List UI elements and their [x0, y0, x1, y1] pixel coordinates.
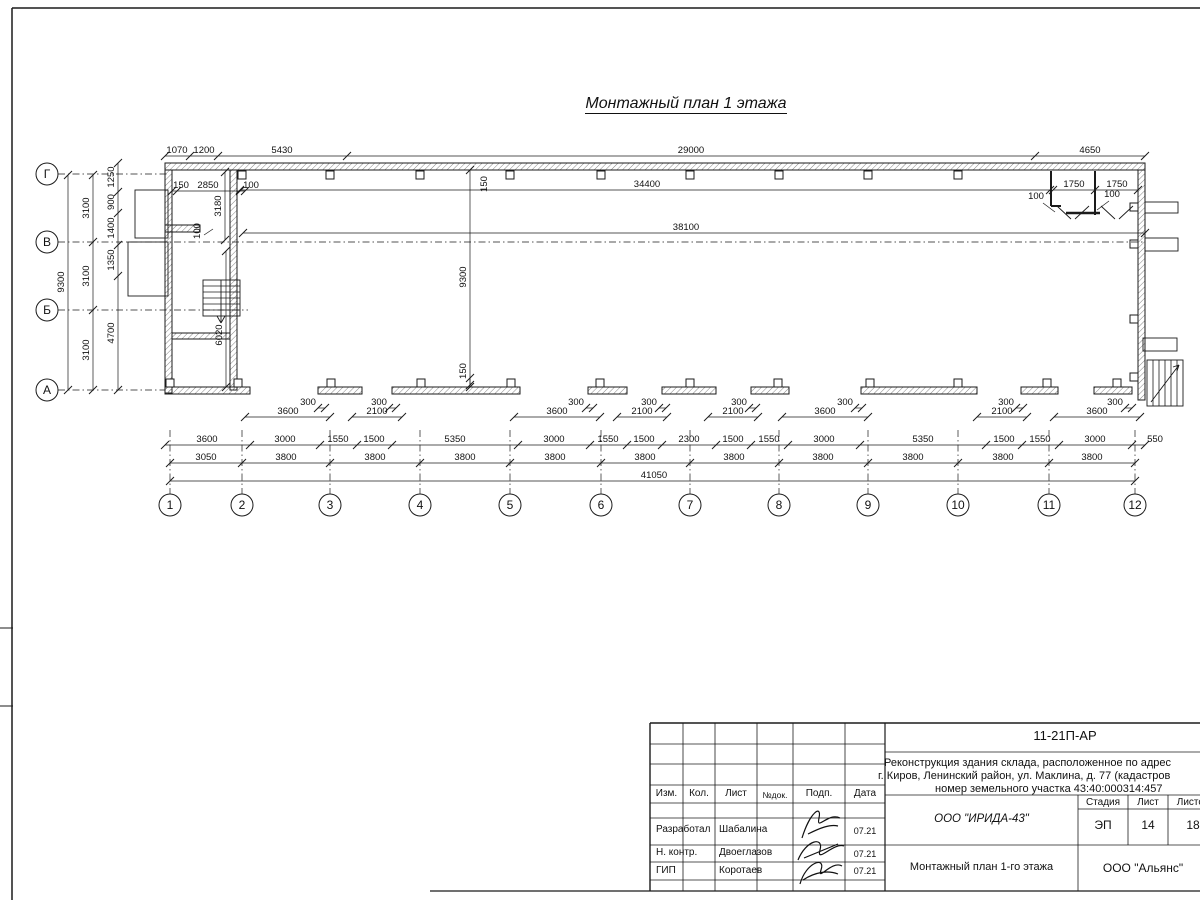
dim-label: 1750	[1063, 179, 1084, 190]
wall	[662, 387, 716, 394]
dimensions-layer: 1070120054302900046501502850100175017503…	[56, 145, 1163, 485]
wall	[392, 387, 520, 394]
wall	[165, 387, 250, 394]
project-description-line3: номер земельного участка 43:40:000314:45…	[935, 783, 1163, 795]
dim-label: 3600	[196, 434, 217, 445]
dim-label: 3100	[81, 339, 92, 360]
header-izm: Изм.	[650, 788, 683, 799]
axis-label: 10	[951, 498, 965, 512]
column-marker	[507, 379, 515, 387]
column-marker	[686, 379, 694, 387]
dim-label: 3800	[902, 452, 923, 463]
column-marker	[238, 171, 246, 179]
dim-label: 3800	[544, 452, 565, 463]
listov-value: 18	[1168, 818, 1200, 832]
structure-outline	[1145, 202, 1178, 213]
axis-label: 7	[687, 498, 694, 512]
dim-label: 29000	[678, 145, 704, 156]
column-marker	[506, 171, 514, 179]
dim-label: 34400	[634, 179, 660, 190]
dim-label: 3800	[812, 452, 833, 463]
date-developer: 07.21	[847, 826, 883, 836]
column-marker	[686, 171, 694, 179]
axis-label: 4	[417, 498, 424, 512]
signature	[802, 811, 840, 838]
dim-label: 300	[641, 397, 657, 408]
column-marker	[234, 379, 242, 387]
column-marker	[327, 379, 335, 387]
column-marker	[1130, 203, 1138, 211]
dim-label: 1550	[758, 434, 779, 445]
dim-label: 9300	[458, 266, 469, 287]
sheet-name: Монтажный план 1-го этажа	[885, 861, 1078, 873]
dim-label: 300	[998, 397, 1014, 408]
axis-label: 6	[598, 498, 605, 512]
dim-label: 1550	[327, 434, 348, 445]
dim-label: 6020	[214, 324, 225, 345]
dim-label: 5430	[271, 145, 292, 156]
column-marker	[1130, 240, 1138, 248]
dim-label: 3800	[723, 452, 744, 463]
column-marker	[954, 379, 962, 387]
dim-label: 150	[173, 180, 189, 191]
axis-label: 11	[1043, 498, 1056, 512]
wall	[1094, 387, 1132, 394]
dim-label: 150	[479, 176, 490, 192]
dim-label: 1070	[166, 145, 187, 156]
project-description-line1: Реконструкция здания склада, расположенн…	[884, 757, 1171, 769]
dim-label: 38100	[673, 222, 699, 233]
dim-label: 300	[1107, 397, 1123, 408]
axis-label: 1	[167, 498, 174, 512]
role-ncontrol: Н. контр.	[656, 847, 697, 858]
stage-header: Стадия	[1078, 797, 1128, 808]
structure-outline	[1145, 238, 1178, 251]
dim-label: 2850	[197, 180, 218, 191]
dim-label: 1500	[993, 434, 1014, 445]
column-marker	[596, 379, 604, 387]
wall	[165, 170, 172, 393]
dim-label: 41050	[641, 470, 667, 481]
dim-label: 9300	[56, 271, 67, 292]
wall	[751, 387, 789, 394]
stage-value: ЭП	[1078, 818, 1128, 832]
dim-label: 1400	[106, 217, 117, 238]
axis-label: 3	[327, 498, 334, 512]
axis-label: Б	[43, 303, 51, 317]
wall	[1138, 170, 1145, 400]
dim-label: 3800	[454, 452, 475, 463]
dim-label: 3600	[546, 406, 567, 417]
header-list: Лист	[715, 788, 757, 799]
dim-label: 100	[1104, 189, 1120, 200]
wall	[318, 387, 362, 394]
column-marker	[954, 171, 962, 179]
dim-label: 3800	[992, 452, 1013, 463]
header-kol: Кол.	[683, 788, 715, 799]
wall	[588, 387, 627, 394]
listov-header: Листов	[1168, 797, 1200, 808]
wall	[861, 387, 977, 394]
walls-layer	[128, 163, 1183, 406]
list-value: 14	[1128, 818, 1168, 832]
dim-label: 1500	[722, 434, 743, 445]
dim-label: 3000	[813, 434, 834, 445]
dim-label: 3000	[543, 434, 564, 445]
column-marker	[1043, 379, 1051, 387]
axis-label: 5	[507, 498, 514, 512]
dim-label: 2300	[678, 434, 699, 445]
column-marker	[1130, 315, 1138, 323]
column-marker	[774, 379, 782, 387]
axis-label: А	[43, 383, 51, 397]
dim-label: 3000	[1084, 434, 1105, 445]
plan-line	[1097, 201, 1109, 210]
dim-label: 1200	[193, 145, 214, 156]
dim-label: 150	[458, 363, 469, 379]
dim-label: 5350	[912, 434, 933, 445]
dim-label: 3800	[634, 452, 655, 463]
axis-label: 9	[865, 498, 872, 512]
column-marker	[866, 379, 874, 387]
dim-label: 300	[300, 397, 316, 408]
dim-label: 3180	[213, 195, 224, 216]
dim-label: 3050	[195, 452, 216, 463]
dim-label: 3000	[274, 434, 295, 445]
dim-label: 300	[371, 397, 387, 408]
signatures-layer	[798, 811, 844, 884]
dim-label: 3800	[275, 452, 296, 463]
structure-outline	[128, 242, 168, 296]
dim-label: 3100	[81, 197, 92, 218]
plan-line	[1119, 206, 1133, 219]
design-org: ООО "ИРИДА-43"	[885, 813, 1078, 825]
axis-label: В	[43, 235, 51, 249]
plan-line	[217, 316, 221, 323]
dim-label: 100	[243, 180, 259, 191]
axis-label: 12	[1128, 498, 1142, 512]
dim-label: 3600	[277, 406, 298, 417]
dim-label: 3100	[81, 265, 92, 286]
dim-label: 100	[1028, 191, 1044, 202]
wall	[165, 163, 1145, 170]
structure-outline	[135, 190, 168, 238]
axis-label: 8	[776, 498, 783, 512]
axis-label: Г	[44, 167, 51, 181]
name-ncontrol: Двоеглазов	[719, 847, 772, 858]
dim-label: 3800	[364, 452, 385, 463]
drawing-sheet: { "sheet": { "title": "Монтажный план 1 …	[0, 0, 1200, 900]
dim-label: 1500	[363, 434, 384, 445]
company-name: ООО "Альянс"	[1078, 861, 1200, 875]
drawing-title: Монтажный план 1 этажа	[585, 95, 786, 114]
role-developer: Разработал	[656, 824, 710, 835]
dim-label: 4700	[106, 322, 117, 343]
column-marker	[1130, 373, 1138, 381]
structure-outline	[1143, 338, 1177, 351]
plan-line	[204, 229, 213, 235]
name-developer: Шабалина	[719, 824, 767, 835]
column-marker	[326, 171, 334, 179]
dim-label: 3600	[1086, 406, 1107, 417]
dim-label: 3800	[1081, 452, 1102, 463]
dim-label: 1250	[106, 166, 117, 187]
project-description-line2: г. Киров, Ленинский район, ул. Маклина, …	[878, 770, 1170, 782]
column-marker	[416, 171, 424, 179]
dim-label: 5350	[444, 434, 465, 445]
plan-line	[221, 316, 225, 323]
column-marker	[597, 171, 605, 179]
list-header: Лист	[1128, 797, 1168, 808]
column-marker	[775, 171, 783, 179]
plan-line	[1101, 206, 1115, 219]
dim-label: 300	[837, 397, 853, 408]
role-gip: ГИП	[656, 865, 676, 876]
name-gip: Коротаев	[719, 865, 762, 876]
header-ndok: №док.	[757, 790, 793, 800]
drawing-title-wrap: Монтажный план 1 этажа	[556, 95, 816, 113]
column-marker	[166, 379, 174, 387]
signature	[800, 862, 842, 884]
plan-line	[1043, 203, 1055, 212]
header-data: Дата	[845, 788, 885, 799]
dim-label: 550	[1147, 434, 1163, 445]
dim-label: 1350	[106, 249, 117, 270]
dim-label: 1550	[597, 434, 618, 445]
column-marker	[864, 171, 872, 179]
column-marker	[417, 379, 425, 387]
header-podp: Подп.	[793, 788, 845, 799]
date-ncontrol: 07.21	[847, 849, 883, 859]
dim-label: 1500	[633, 434, 654, 445]
dim-label: 300	[568, 397, 584, 408]
document-code: 11-21П-АР	[885, 728, 1200, 743]
dim-label: 1550	[1029, 434, 1050, 445]
dim-label: 3600	[814, 406, 835, 417]
signature	[798, 842, 844, 860]
dim-label: 300	[731, 397, 747, 408]
date-gip: 07.21	[847, 866, 883, 876]
column-marker	[1113, 379, 1121, 387]
dim-label: 900	[106, 194, 117, 210]
dim-label: 4650	[1079, 145, 1100, 156]
wall	[1021, 387, 1058, 394]
dim-label: 100	[192, 223, 203, 239]
axis-label: 2	[239, 498, 246, 512]
